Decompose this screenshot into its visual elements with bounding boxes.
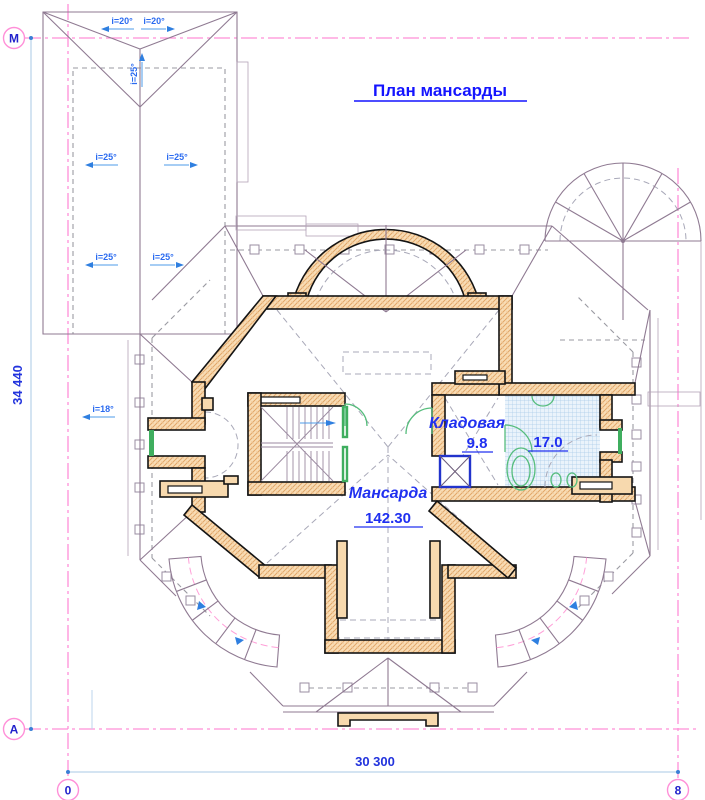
axis-marker-label: 0 — [65, 784, 72, 798]
slope-label: i=25° — [129, 63, 139, 85]
window — [618, 428, 622, 454]
labels: План мансарды Кладовая 9.8 17.0 Мансарда… — [10, 81, 568, 769]
slope-label: i=18° — [92, 404, 114, 414]
top-wall — [263, 296, 512, 309]
horizontal-dimension: 30 300 — [355, 754, 395, 769]
axis-marker-label: А — [10, 723, 19, 737]
bathroom-area: 17.0 — [533, 434, 562, 451]
pilaster-left — [337, 541, 347, 618]
slope-annotation: i=25° — [85, 152, 118, 168]
slope-annotation: i=25° — [129, 53, 145, 87]
slope-label: i=25° — [166, 152, 188, 162]
attic-room-label: Мансарда — [349, 485, 428, 502]
attic-room-area: 142.30 — [365, 510, 411, 527]
storage-room-label: Кладовая — [429, 415, 506, 432]
vertical-dimension: 34 440 — [10, 365, 25, 405]
pilaster-right — [430, 541, 440, 618]
slope-label: i=20° — [111, 16, 133, 26]
alcove-bottom-wall — [148, 456, 205, 468]
slope-annotation: i=20° — [141, 16, 175, 32]
axis-marker-label: М — [9, 32, 19, 46]
ventilation-shaft — [440, 456, 470, 487]
window — [149, 430, 154, 456]
bathroom-top-wall — [499, 383, 635, 395]
slope-annotation: i=20° — [101, 16, 134, 32]
staircase — [248, 393, 347, 495]
slope-annotation: i=25° — [85, 252, 118, 268]
garage-roof — [43, 12, 248, 334]
slope-annotation: i=25° — [164, 152, 198, 168]
storage-room-area: 9.8 — [467, 435, 488, 452]
slope-label: i=25° — [95, 252, 117, 262]
window — [343, 447, 347, 481]
bottom-wall — [325, 640, 455, 653]
page-title: План мансарды — [373, 81, 507, 100]
slope-label: i=25° — [95, 152, 117, 162]
slope-annotation: i=18° — [82, 404, 115, 420]
floor-plan-page: План мансарды Кладовая 9.8 17.0 Мансарда… — [0, 0, 705, 800]
axis-marker-label: 8 — [675, 784, 682, 798]
slope-label: i=20° — [143, 16, 165, 26]
alcove-top-wall — [148, 418, 205, 430]
chamfer-top-left — [192, 296, 276, 390]
bottom-balcony — [338, 713, 438, 726]
slope-annotation: i=25° — [150, 252, 184, 268]
slope-label: i=25° — [152, 252, 174, 262]
stair-direction-arrow — [326, 420, 336, 426]
door-swing — [345, 404, 367, 426]
chamfer-bottom-left — [184, 505, 267, 577]
floor-plan-drawing: План мансарды Кладовая 9.8 17.0 Мансарда… — [0, 0, 705, 800]
